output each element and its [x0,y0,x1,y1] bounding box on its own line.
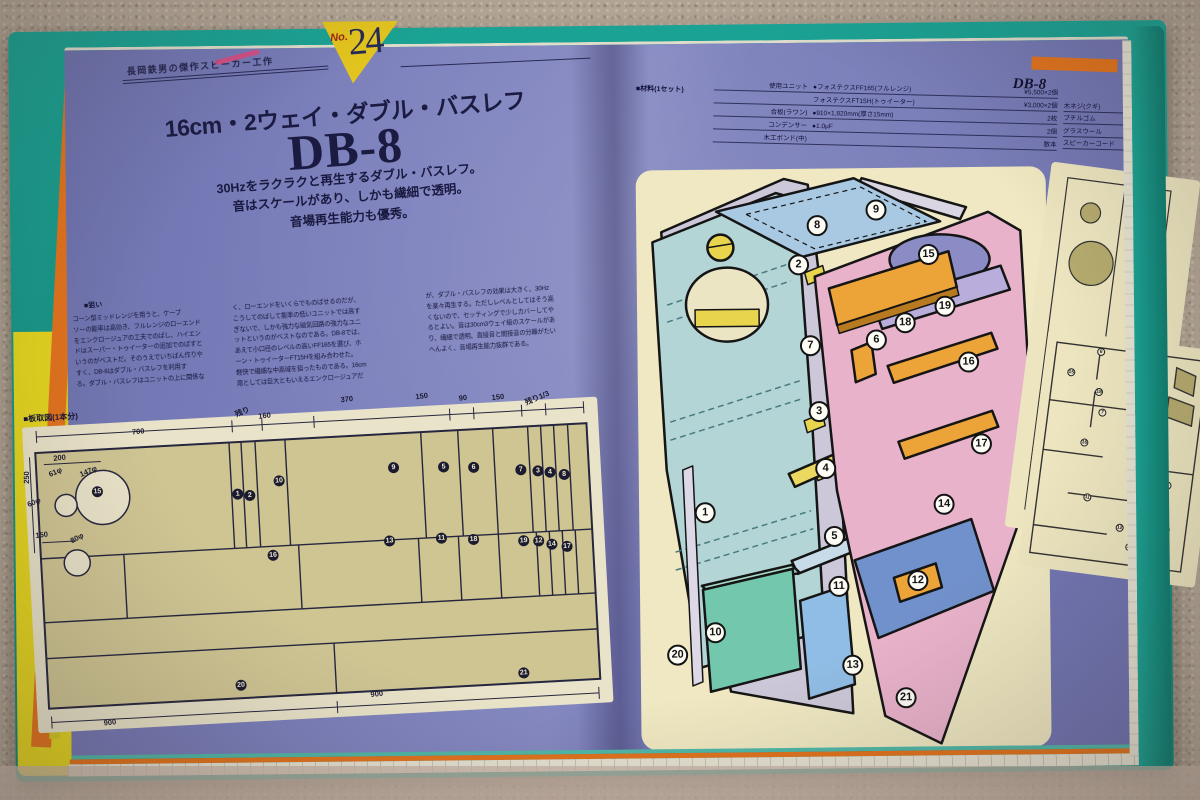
body-text-column-2: く、ローエンドをいくらでものばせるのだが、 こうしてのばして能率の低いユニットで… [232,292,422,390]
cross-section-diagram: 61521873164151110121413 [1018,329,1200,588]
exp-num: 17 [971,433,992,454]
materials-cell: スピーカーコード [1063,137,1125,149]
photo-of-open-book: { "page_label": "DB-8", "badge": { "no":… [0,0,1200,800]
materials-cell: 合板(ラワン) [713,104,807,116]
exp-num: 5 [824,526,845,547]
materials-cell: 木工ボンド(中) [713,130,807,142]
exp-num: 21 [896,687,917,708]
cutting-layout-diagram: ■板取図(1本分) 700残り16037015090150残り1/3250200… [21,382,616,747]
exp-num: 1 [695,502,716,523]
cut-dim: 150 [491,392,504,402]
exp-num: 18 [895,312,916,333]
cut-dim: 200 [53,453,66,463]
materials-cell: ブチルゴム [1063,112,1125,124]
cut-dim: 370 [340,394,353,404]
body-heading: ■狙い [84,300,103,311]
exp-num: 19 [934,296,955,317]
cut-dim: 160 [258,410,271,420]
materials-table: ■材料(1セット) 使用ユニット●フォステクスFF165(フルレンジ)¥5,50… [634,74,1152,179]
exp-num: 13 [842,655,863,676]
exp-num: 14 [933,494,954,515]
materials-cell: 数本 [999,137,1057,148]
cut-dim: 150 [35,530,48,540]
exp-num: 3 [809,401,830,422]
materials-table-label: ■材料(1セット) [636,84,684,95]
book-page-spread: 長岡鉄男の傑作スピーカー工作 No. 24 16cm・2ウェイ・ダブル・バスレフ… [64,36,1135,759]
materials-cell: 使用ユニット [714,78,808,90]
cut-dim: 90 [458,393,467,403]
exp-num: 15 [918,244,939,265]
materials-cell: ¥3,000×2個 [1000,98,1058,109]
exp-num: 12 [907,570,928,591]
materials-cell: グラスウール [1063,124,1125,136]
materials-cell: 2枚 [999,111,1057,122]
cut-dim: 700 [132,426,145,436]
exp-num: 16 [958,351,979,372]
cutting-diagram-drawing [21,382,616,747]
exp-num: 11 [828,576,849,597]
cut-dim: 250 [22,471,31,484]
materials-cell: 2個 [999,124,1057,135]
header-rule [401,58,591,68]
exploded-cabinet-diagram: 892151918671631741145111210201321 [636,166,1052,750]
exp-num: 2 [788,254,809,275]
badge-no-label: No. [330,31,349,44]
materials-cell: コンデンサー [713,117,807,129]
exp-num: 7 [800,335,821,356]
page-corner-model-label: DB-8 [1013,76,1047,94]
top-right-accent-stripe [1031,56,1117,72]
cut-dim: 900 [370,689,383,699]
cut-dim: 900 [103,717,116,727]
body-text-column-1: コーン型ミッドレンジを用うと、ケーブ ソーの能率は高効き、フルレンジのローエンド… [72,304,256,391]
carpet-foreground [0,766,1200,800]
badge-number: 24 [347,18,384,65]
materials-cell [807,143,999,148]
materials-table-left: 使用ユニット●フォステクスFF165(フルレンジ)¥5,500×2個フォステクス… [713,77,1058,150]
exp-num: 6 [866,329,887,350]
exp-num: 9 [865,199,886,220]
exp-num: 10 [705,622,726,643]
exp-num: 4 [815,458,836,479]
open-book: 長岡鉄男の傑作スピーカー工作 No. 24 16cm・2ウェイ・ダブル・バスレフ… [8,20,1174,782]
exp-num: 8 [807,215,828,236]
exp-num: 20 [667,644,688,665]
materials-cell: 木ネジ(クギ) [1064,99,1126,111]
body-text-column-3: が、ダブル・バスレフの効果は大きく、30Hz を楽々再生する。ただしレベルとして… [425,280,614,356]
cut-dim: 150 [415,391,428,401]
cross-section-drawing [1018,329,1200,588]
